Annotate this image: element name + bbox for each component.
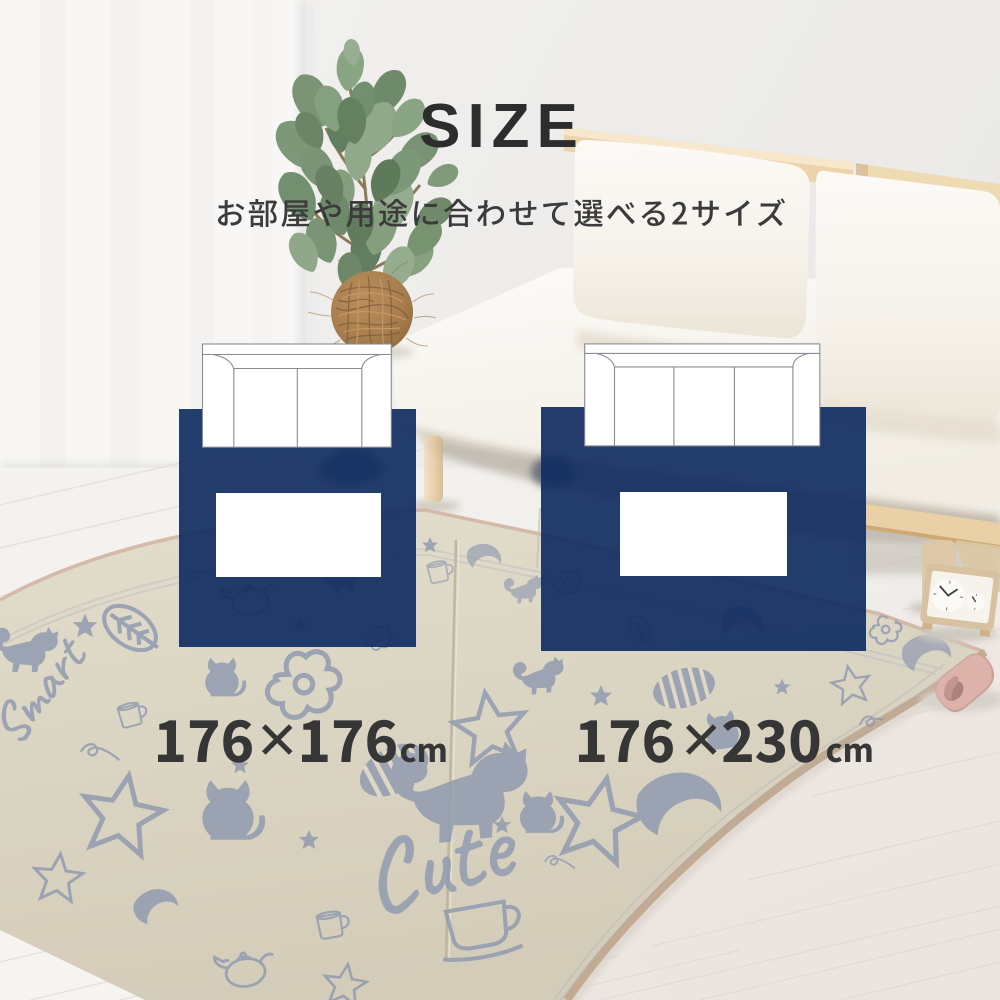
svg-text:SIZE: SIZE bbox=[419, 92, 585, 161]
